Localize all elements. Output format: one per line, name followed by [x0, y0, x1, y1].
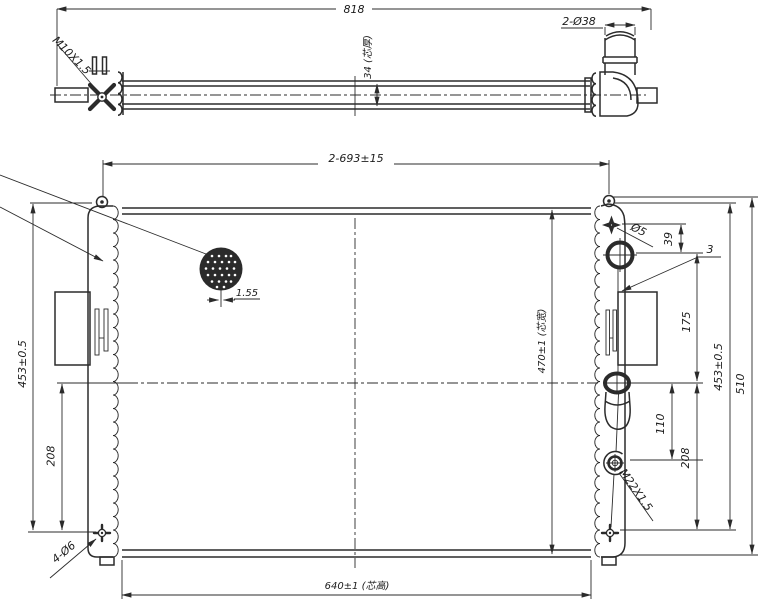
- dim-overall-height-text: 510: [734, 374, 747, 395]
- tank-foot: [602, 557, 616, 565]
- dim-center-to-bottom-left: 208: [45, 383, 128, 530]
- label-fitting-thread: M10X1.5: [50, 34, 94, 87]
- label-mount-holes: 4-Ø6: [49, 539, 96, 578]
- dim-center-to-bottom-right: 208: [679, 384, 697, 529]
- label-mount-holes-text: 4-Ø6: [49, 539, 78, 566]
- dim-center-to-drain-text: 110: [654, 414, 667, 435]
- bottom-mount-pin-right: [602, 525, 618, 541]
- dim-filler-to-center-text: 175: [680, 312, 693, 333]
- dim-pipe-ports-text: 2-Ø38: [562, 15, 596, 28]
- dim-pin-span: 2-693±15: [103, 152, 609, 196]
- tank-crimp-serration: [595, 206, 600, 557]
- tank-foot: [100, 557, 114, 565]
- dim-center-to-bottom-right-text: 208: [679, 448, 692, 469]
- left-tank: [55, 206, 118, 565]
- radiator-engineering-drawing: 818 2-Ø38 34 (芯厚) M10X1.5: [0, 0, 764, 600]
- serrated-connector: [118, 72, 122, 115]
- core-side-profile: [50, 81, 646, 109]
- label-bracket-thickness-text: 3: [707, 243, 714, 256]
- dim-core-thickness-text: 34 (芯厚): [362, 35, 374, 79]
- label-bracket-thickness: 3: [622, 243, 721, 291]
- dim-center-to-drain: 110: [630, 383, 703, 460]
- label-fitting-thread-text: M10X1.5: [50, 34, 94, 78]
- dim-height-left: 453±0.5: [16, 203, 96, 532]
- radiator-core: [122, 208, 601, 568]
- mounting-bracket-right: [618, 292, 657, 365]
- front-view: 2-693±15 1.55 453±0.5 208 4: [0, 152, 758, 599]
- dim-bleed-to-filler-text: 39: [662, 232, 675, 246]
- dim-pin-span-text: 2-693±15: [328, 152, 383, 165]
- dim-filler-to-center: 175: [680, 254, 697, 381]
- top-mount-pin-right: [604, 196, 615, 207]
- dim-overall-length-text: 818: [344, 3, 365, 16]
- dim-height-right-text: 453±0.5: [712, 343, 725, 391]
- dim-core-height: 640±1 (芯高): [122, 560, 591, 599]
- top-view: 818 2-Ø38 34 (芯厚) M10X1.5: [50, 3, 657, 116]
- outlet-elbow-pipe: [585, 32, 657, 116]
- dim-height-left-text: 453±0.5: [16, 340, 29, 388]
- drawing-ink: 818 2-Ø38 34 (芯厚) M10X1.5: [0, 3, 758, 599]
- dim-core-width: 470±1 (芯宽): [536, 210, 552, 554]
- bottom-mount-pin-left: [94, 525, 110, 541]
- dim-core-width-text: 470±1 (芯宽): [536, 309, 548, 374]
- label-drain-thread-text: M22X1.5: [617, 466, 655, 513]
- bleed-valve-star: [602, 216, 621, 235]
- mounting-bracket-left: [55, 292, 90, 365]
- filler-neck: [603, 238, 637, 272]
- label-drain-thread: M22X1.5: [617, 466, 655, 521]
- inlet-fitting: [89, 57, 123, 115]
- dim-center-to-bottom-left-text: 208: [45, 446, 58, 467]
- dim-core-height-text: 640±1 (芯高): [325, 580, 390, 592]
- dim-fin-pitch: 1.55: [207, 288, 260, 307]
- label-bleed-hole-text: Ø5: [628, 220, 649, 239]
- dim-fin-pitch-text: 1.55: [236, 288, 258, 299]
- pipe-stub: [637, 88, 657, 103]
- dim-overall-height: 510: [613, 197, 758, 555]
- tank-crimp-serration: [113, 206, 118, 557]
